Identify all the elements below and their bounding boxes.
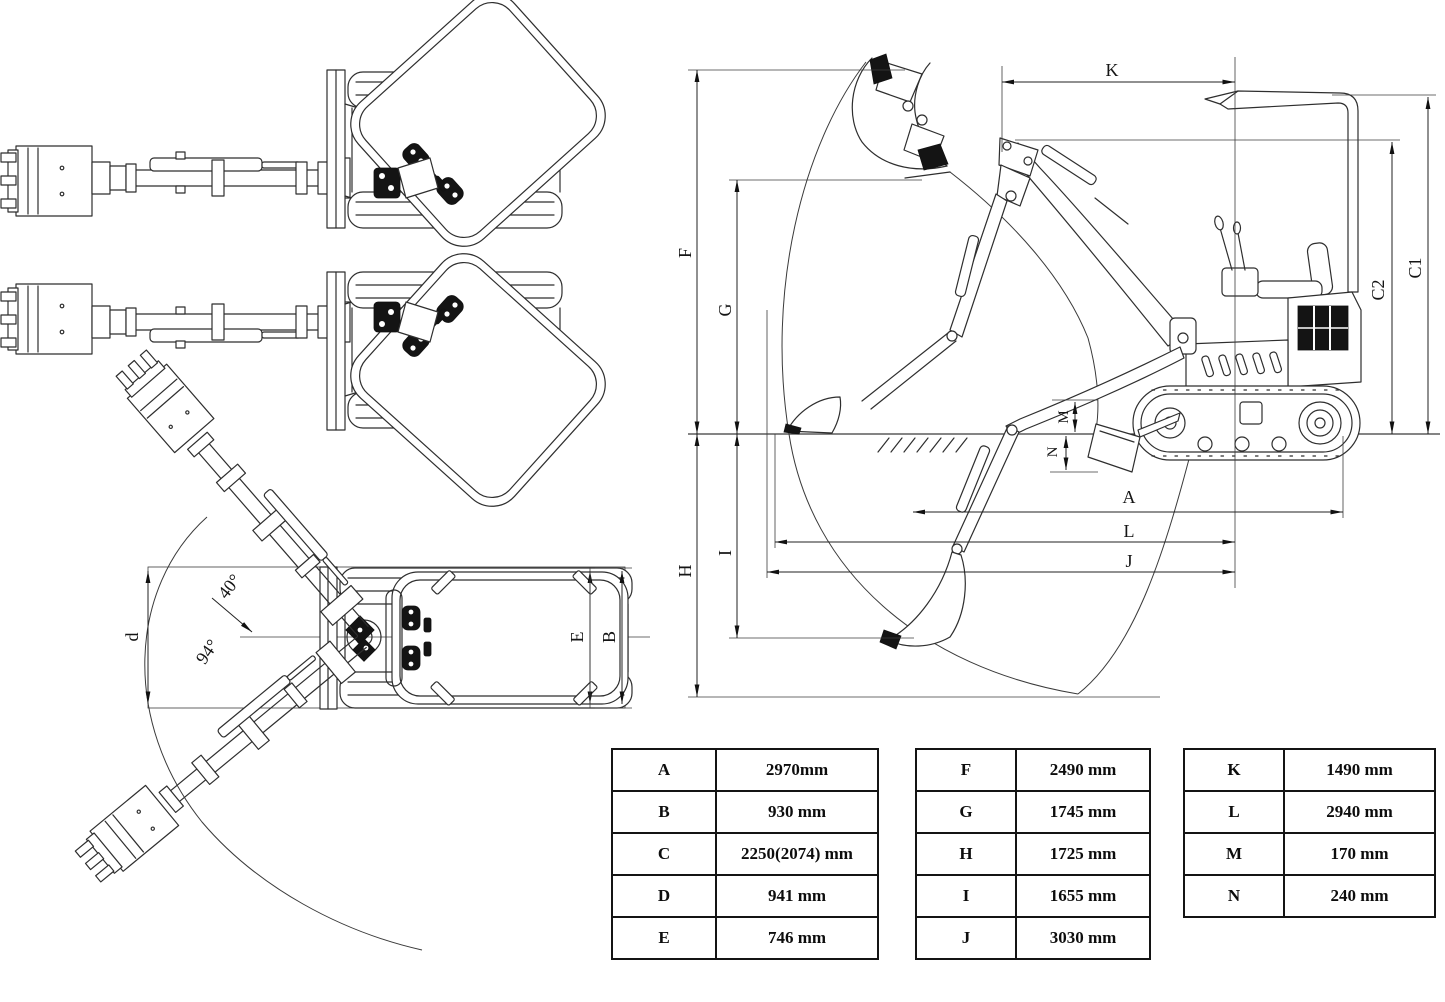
dim-label-cell: C <box>612 833 716 875</box>
dim-value-cell: 170 mm <box>1284 833 1435 875</box>
dim-label-cell: A <box>612 749 716 791</box>
dim-label-cell: M <box>1184 833 1284 875</box>
dimension-table-f-j: F2490 mm G1745 mm H1725 mm I1655 mm J303… <box>915 748 1151 960</box>
ground-hatch <box>878 438 967 452</box>
table-row: M170 mm <box>1184 833 1435 875</box>
dim-label-F: F <box>675 248 695 258</box>
dimension-table-a-e: A2970mm B930 mm C2250(2074) mm D941 mm E… <box>611 748 879 960</box>
table-row: D941 mm <box>612 875 878 917</box>
dim-label-J: J <box>1125 551 1132 571</box>
dim-label-I: I <box>715 550 735 556</box>
dim-label-cell: G <box>916 791 1016 833</box>
dim-value-cell: 941 mm <box>716 875 878 917</box>
dim-label-cell: E <box>612 917 716 959</box>
dim-value-cell: 1745 mm <box>1016 791 1150 833</box>
dim-value-cell: 2250(2074) mm <box>716 833 878 875</box>
table-row: E746 mm <box>612 917 878 959</box>
dim-label-cell: L <box>1184 791 1284 833</box>
dim-label-cell: K <box>1184 749 1284 791</box>
table-row: B930 mm <box>612 791 878 833</box>
table-row: G1745 mm <box>916 791 1150 833</box>
dim-value-cell: 1725 mm <box>1016 833 1150 875</box>
dim-label-cell: N <box>1184 875 1284 917</box>
table-row: A2970mm <box>612 749 878 791</box>
dim-label-cell: H <box>916 833 1016 875</box>
dim-value-cell: 3030 mm <box>1016 917 1150 959</box>
dim-label-cell: D <box>612 875 716 917</box>
dim-value-cell: 2970mm <box>716 749 878 791</box>
dim-label-cell: I <box>916 875 1016 917</box>
table-row: N240 mm <box>1184 875 1435 917</box>
dim-value-cell: 1490 mm <box>1284 749 1435 791</box>
dim-label-C1: C1 <box>1405 257 1425 278</box>
dim-label-H: H <box>675 565 695 578</box>
excavator-dimension-sheet: d E B 40° 94° <box>0 0 1445 1002</box>
table-row: I1655 mm <box>916 875 1150 917</box>
dim-value-cell: 746 mm <box>716 917 878 959</box>
dim-value-cell: 240 mm <box>1284 875 1435 917</box>
dim-value-cell: 2490 mm <box>1016 749 1150 791</box>
top-view-boom-left-cab-down <box>1 241 618 518</box>
dim-label-B: B <box>599 631 619 643</box>
table-row: K1490 mm <box>1184 749 1435 791</box>
dim-value-cell: 930 mm <box>716 791 878 833</box>
angle-label-40: 40° <box>214 570 245 602</box>
table-row: L2940 mm <box>1184 791 1435 833</box>
table-row: H1725 mm <box>916 833 1150 875</box>
dim-value-cell: 2940 mm <box>1284 791 1435 833</box>
dim-label-K: K <box>1106 60 1119 80</box>
table-row: J3030 mm <box>916 917 1150 959</box>
dim-label-M: M <box>1056 410 1072 423</box>
dim-label-cell: F <box>916 749 1016 791</box>
table-row: C2250(2074) mm <box>612 833 878 875</box>
dim-label-L: L <box>1124 521 1135 541</box>
dim-value-cell: 1655 mm <box>1016 875 1150 917</box>
dim-label-C2: C2 <box>1368 279 1388 300</box>
dim-label-d: d <box>122 633 142 642</box>
dim-label-N: N <box>1045 446 1061 457</box>
dimension-table-k-n: K1490 mm L2940 mm M170 mm N240 mm <box>1183 748 1436 918</box>
top-view-boom-left-cab-up <box>1 0 618 259</box>
dim-label-A: A <box>1123 487 1136 507</box>
angle-label-94: 94° <box>192 636 223 668</box>
dim-label-G: G <box>715 304 735 317</box>
dim-label-cell: B <box>612 791 716 833</box>
side-view-working-range: F G H I K C1 C2 A L J M N <box>675 54 1440 697</box>
dim-label-cell: J <box>916 917 1016 959</box>
dim-label-E: E <box>567 632 587 643</box>
table-row: F2490 mm <box>916 749 1150 791</box>
